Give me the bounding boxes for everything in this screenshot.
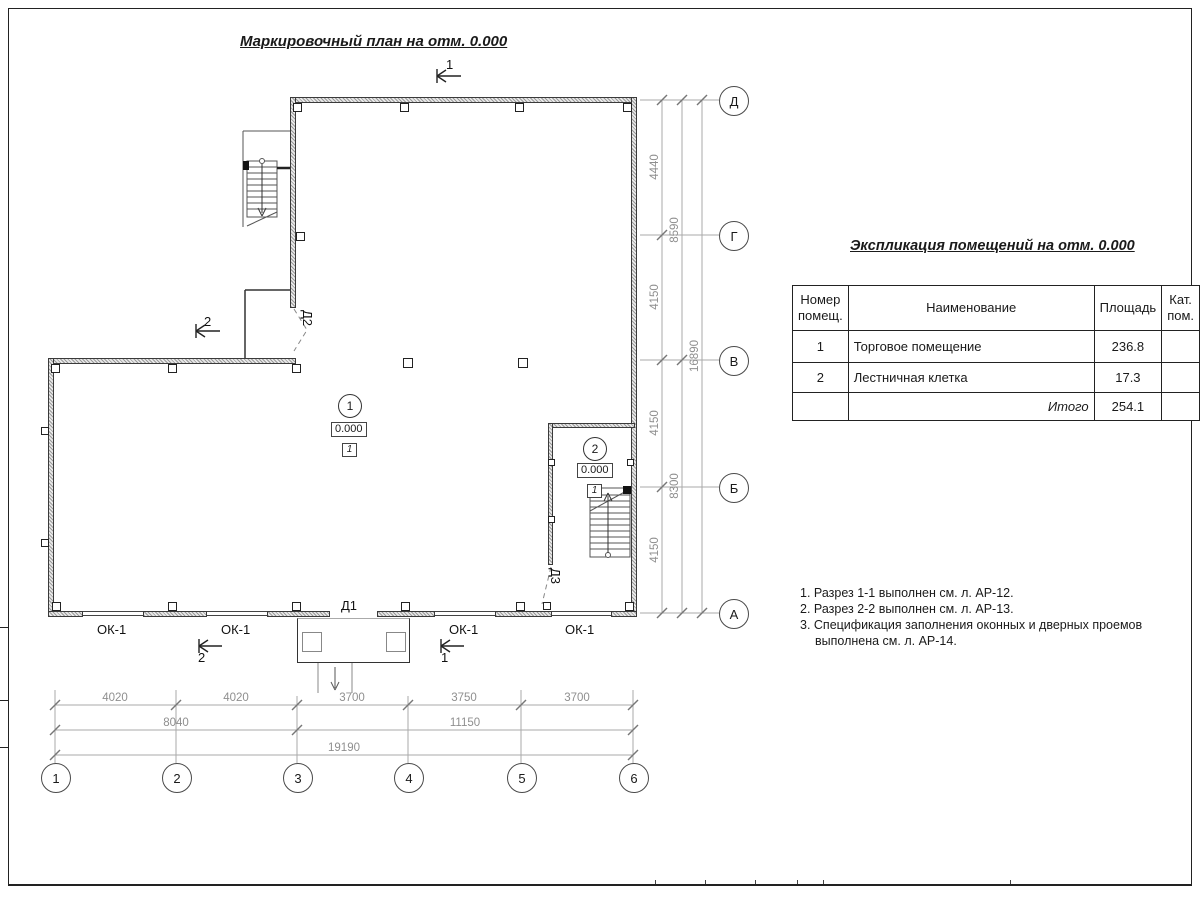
titleblock-tick bbox=[1010, 880, 1011, 884]
wall-right bbox=[631, 97, 637, 617]
window-label: ОК-1 bbox=[97, 622, 126, 637]
pilaster bbox=[168, 602, 177, 611]
axis-bubble-3: 3 bbox=[283, 763, 313, 793]
cell-area: 236.8 bbox=[1094, 331, 1162, 363]
binding-mark bbox=[0, 700, 8, 701]
wall-bottom-pier bbox=[495, 611, 552, 617]
table-row: 1 Торговое помещение 236.8 bbox=[793, 331, 1200, 363]
pilaster bbox=[41, 539, 49, 547]
porch-steps bbox=[318, 663, 352, 693]
explication-table: Номер помещ. Наименование Площадь Кат. п… bbox=[792, 285, 1200, 421]
cell-number: 2 bbox=[793, 363, 849, 393]
dim-text: 4020 bbox=[223, 692, 249, 704]
pilaster bbox=[296, 232, 305, 241]
dim-text: 11150 bbox=[450, 717, 480, 729]
cell-area: 17.3 bbox=[1094, 363, 1162, 393]
wall-top bbox=[290, 97, 637, 103]
note-item: 3. Спецификация заполнения оконных и две… bbox=[800, 617, 1160, 649]
pilaster bbox=[400, 103, 409, 112]
total-area: 254.1 bbox=[1094, 393, 1162, 421]
titleblock-tick bbox=[655, 880, 656, 884]
dim-text: 8590 bbox=[669, 217, 681, 243]
door-label-d1: Д1 bbox=[341, 598, 357, 613]
porch-column bbox=[386, 632, 406, 652]
axis-bubble-5: 5 bbox=[507, 763, 537, 793]
pilaster bbox=[293, 103, 302, 112]
section-label-2-left: 2 bbox=[204, 314, 211, 329]
header-name: Наименование bbox=[848, 286, 1094, 331]
stair-top-left bbox=[243, 131, 290, 227]
axis-bubble-1: 1 bbox=[41, 763, 71, 793]
pilaster bbox=[516, 602, 525, 611]
binding-mark bbox=[0, 627, 8, 628]
pilaster bbox=[168, 364, 177, 373]
window-label: ОК-1 bbox=[449, 622, 478, 637]
dim-text: 8040 bbox=[163, 717, 189, 729]
column bbox=[518, 358, 528, 368]
axis-bubble-4: 4 bbox=[394, 763, 424, 793]
titleblock-tick bbox=[823, 880, 824, 884]
dim-text: 4020 bbox=[102, 692, 128, 704]
room-1-number: 1 bbox=[338, 394, 362, 418]
pilaster bbox=[543, 602, 551, 610]
door-label-d2: Д2 bbox=[300, 310, 315, 326]
cell-category bbox=[1162, 363, 1200, 393]
section-label-1-bottom: 1 bbox=[441, 650, 448, 665]
notes-list: 1. Разрез 1-1 выполнен см. л. АР-12. 2. … bbox=[800, 585, 1160, 649]
dim-text: 19190 bbox=[328, 742, 360, 754]
axis-bubble-d: Д bbox=[719, 86, 749, 116]
axis-bubble-b: Б bbox=[719, 473, 749, 503]
pilaster bbox=[41, 427, 49, 435]
door-label-d3: Д3 bbox=[548, 568, 563, 584]
room-2-floor-type: 1 bbox=[587, 484, 602, 498]
note-item: 1. Разрез 1-1 выполнен см. л. АР-12. bbox=[800, 585, 1160, 601]
section-label-2-bottom: 2 bbox=[198, 650, 205, 665]
dim-text: 4150 bbox=[649, 410, 661, 436]
wall-left-lower bbox=[48, 358, 54, 617]
column bbox=[403, 358, 413, 368]
table-total-row: Итого 254.1 bbox=[793, 393, 1200, 421]
pilaster bbox=[52, 602, 61, 611]
table-row: 2 Лестничная клетка 17.3 bbox=[793, 363, 1200, 393]
wall-bottom-pier bbox=[611, 611, 637, 617]
wall-bottom-pier bbox=[48, 611, 83, 617]
titleblock-tick bbox=[705, 880, 706, 884]
axis-bubble-g: Г bbox=[719, 221, 749, 251]
frame-bottom bbox=[8, 884, 1192, 886]
wall-left-upper bbox=[290, 97, 296, 308]
frame-top bbox=[8, 8, 1192, 9]
cell-empty bbox=[793, 393, 849, 421]
pilaster bbox=[401, 602, 410, 611]
room-2-elevation: 0.000 bbox=[577, 463, 613, 478]
window-ok1 bbox=[83, 611, 143, 616]
window-ok1 bbox=[207, 611, 267, 616]
window-label: ОК-1 bbox=[565, 622, 594, 637]
wall-bottom-pier bbox=[377, 611, 435, 617]
axis-bubble-2: 2 bbox=[162, 763, 192, 793]
total-label: Итого bbox=[848, 393, 1094, 421]
dim-text: 3750 bbox=[451, 692, 477, 704]
table-header-row: Номер помещ. Наименование Площадь Кат. п… bbox=[793, 286, 1200, 331]
explication-title: Экспликация помещений на отм. 0.000 bbox=[850, 238, 1135, 254]
pilaster bbox=[623, 103, 632, 112]
axis-bubble-a: А bbox=[719, 599, 749, 629]
frame-right bbox=[1191, 8, 1192, 885]
porch-column bbox=[302, 632, 322, 652]
pilaster bbox=[51, 364, 60, 373]
dim-text: 16890 bbox=[689, 340, 701, 372]
section-label-1-top: 1 bbox=[446, 57, 453, 72]
dim-text: 4440 bbox=[649, 154, 661, 180]
window-ok1 bbox=[435, 611, 495, 616]
axis-bubble-6: 6 bbox=[619, 763, 649, 793]
cell-empty bbox=[1162, 393, 1200, 421]
cell-category bbox=[1162, 331, 1200, 363]
wall-stairwell-left bbox=[548, 423, 553, 565]
dim-text: 4150 bbox=[649, 284, 661, 310]
pilaster bbox=[515, 103, 524, 112]
page-title: Маркировочный план на отм. 0.000 bbox=[240, 33, 507, 50]
cell-name: Лестничная клетка bbox=[848, 363, 1094, 393]
drawing-sheet: Маркировочный план на отм. 0.000 bbox=[0, 0, 1200, 900]
dim-text: 3700 bbox=[339, 692, 365, 704]
wall-bottom-pier bbox=[267, 611, 330, 617]
room-1-elevation: 0.000 bbox=[331, 422, 367, 437]
room-1-floor-type: 1 bbox=[342, 443, 357, 457]
axis-bubble-v: В bbox=[719, 346, 749, 376]
cell-number: 1 bbox=[793, 331, 849, 363]
header-number: Номер помещ. bbox=[793, 286, 849, 331]
pilaster bbox=[625, 602, 634, 611]
pilaster bbox=[292, 602, 301, 611]
titleblock-tick bbox=[755, 880, 756, 884]
binding-mark bbox=[0, 747, 8, 748]
window-ok1 bbox=[552, 611, 611, 616]
window-label: ОК-1 bbox=[221, 622, 250, 637]
room-2-number: 2 bbox=[583, 437, 607, 461]
header-area: Площадь bbox=[1094, 286, 1162, 331]
pilaster bbox=[627, 459, 634, 466]
header-category: Кат. пом. bbox=[1162, 286, 1200, 331]
dim-text: 3700 bbox=[564, 692, 590, 704]
titleblock-tick bbox=[797, 880, 798, 884]
wall-bottom-pier bbox=[143, 611, 207, 617]
frame-left bbox=[8, 8, 9, 885]
pilaster bbox=[292, 364, 301, 373]
wall-stairwell-top bbox=[548, 423, 635, 428]
dim-text: 4150 bbox=[649, 537, 661, 563]
dim-text: 8300 bbox=[669, 473, 681, 499]
interior-partition bbox=[245, 290, 290, 358]
pilaster bbox=[548, 516, 555, 523]
note-item: 2. Разрез 2-2 выполнен см. л. АР-13. bbox=[800, 601, 1160, 617]
pilaster bbox=[548, 459, 555, 466]
cell-name: Торговое помещение bbox=[848, 331, 1094, 363]
